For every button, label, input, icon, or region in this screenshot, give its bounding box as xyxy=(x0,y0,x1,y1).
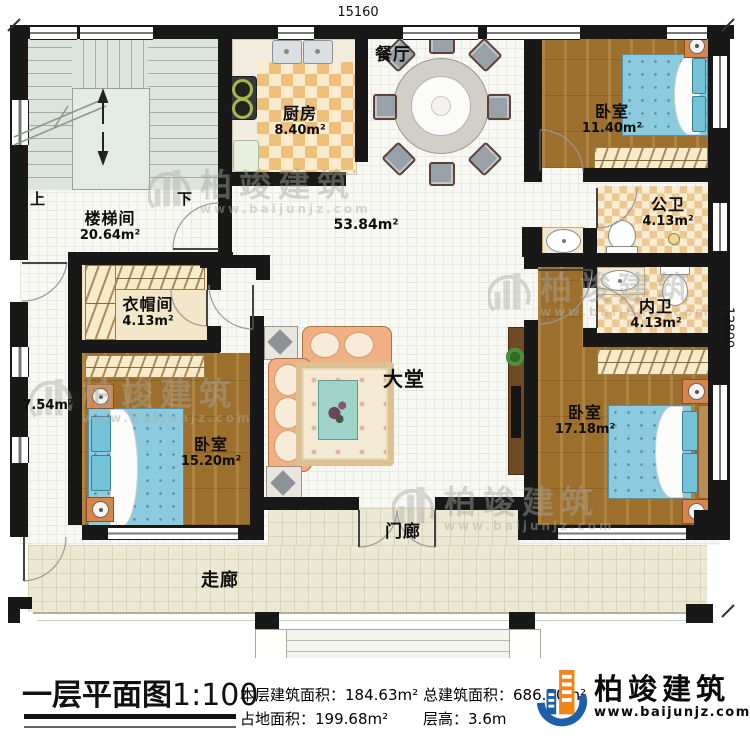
title-underline-2 xyxy=(24,726,236,728)
stair-break-line xyxy=(14,98,106,145)
title-underline xyxy=(24,714,236,719)
brand-logo: 柏竣建筑www.baijunjz.com xyxy=(534,666,750,728)
brand-name: 柏竣建筑 xyxy=(594,673,750,705)
room-label-cloakroom: 衣帽间4.13m² xyxy=(122,296,173,329)
plan-title: 一层平面图1:100 xyxy=(22,670,258,714)
stair-down-label: 下 xyxy=(177,190,193,208)
side-passage-area-label: 7.54m² xyxy=(22,398,73,413)
stat-floor-area: 本层建筑面积：184.63m² xyxy=(240,684,418,705)
room-label-kitchen: 厨房8.40m² xyxy=(274,105,325,138)
brand-url: www.baijunjz.com xyxy=(594,705,750,721)
room-label-inner-bath: 内卫4.13m² xyxy=(630,298,681,331)
hall-area-label: 53.84m² xyxy=(333,218,398,233)
room-label-public-bath: 公卫4.13m² xyxy=(642,196,693,229)
room-label-corridor: 走廊 xyxy=(201,572,239,590)
room-label-hall: 大堂 xyxy=(383,370,425,388)
brand-logo-icon xyxy=(534,666,588,728)
room-label-bedroom1: 卧室11.40m² xyxy=(582,103,642,136)
stat-floor-height: 层高：3.6m xyxy=(423,708,506,729)
room-label-stairwell: 楼梯间20.64m² xyxy=(80,210,140,243)
room-label-porch: 门廊 xyxy=(385,523,421,541)
room-label-dining: 餐厅 xyxy=(375,46,411,64)
dimension-top: 15160 xyxy=(337,5,378,20)
dimension-right: 12800 xyxy=(721,302,736,354)
room-label-bedroom3: 卧室15.20m² xyxy=(181,436,241,469)
stair-direction-arrows xyxy=(99,91,107,163)
title-block: 一层平面图1:100 本层建筑面积：184.63m² 占地面积：199.68m²… xyxy=(0,658,750,739)
stair-up-label: 上 xyxy=(30,190,46,208)
stat-land-area: 占地面积：199.68m² xyxy=(240,708,388,729)
floor-plan-canvas: 柏竣建筑www.baijunjz.com 柏竣建筑www.baijunjz.co… xyxy=(0,0,750,739)
room-label-bedroom2: 卧室17.18m² xyxy=(555,404,615,437)
